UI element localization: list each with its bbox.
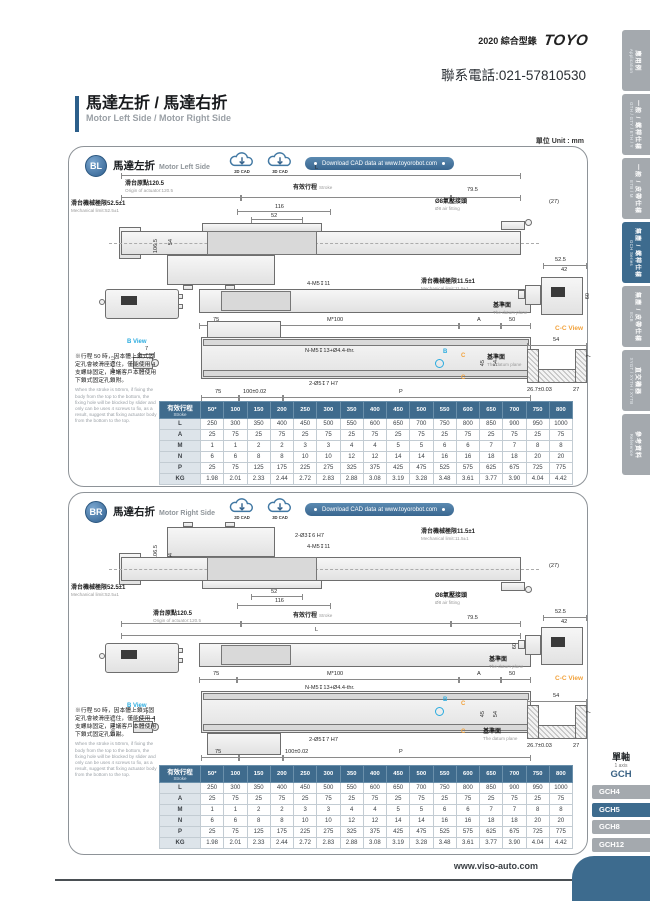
spec-header-row: 有效行程Stroke50*100150200250300350400450500… [160, 402, 573, 419]
spec-cell: 4 [340, 805, 363, 816]
spec-cell: 12 [340, 452, 363, 463]
spec-cell: 950 [526, 783, 549, 794]
dim-line [121, 635, 521, 636]
dim-label-en: Mechanical limit:52.5±1 [71, 592, 125, 598]
spec-cell: 10 [317, 816, 340, 827]
spec-cell: 5 [410, 805, 433, 816]
spec-cell: 3.28 [410, 474, 433, 485]
spec-cell: 600 [363, 783, 386, 794]
spec-cell: 8 [247, 816, 270, 827]
dim-label: 42 [561, 267, 567, 273]
dim-line [121, 623, 241, 624]
stroke-value-cell: 100 [224, 766, 247, 783]
slider-plate-shape [202, 580, 322, 589]
spec-cell: 1 [224, 805, 247, 816]
stroke-value-cell: 800 [549, 766, 572, 783]
dim-label-en: Mechanical limit:52.5±1 [71, 208, 125, 214]
bl-badge: BL [85, 155, 107, 177]
tab-label-zh: 應用例 [634, 48, 643, 72]
spec-cell: 8 [270, 452, 293, 463]
spec-cell: 8 [270, 816, 293, 827]
stroke-value-cell: 700 [503, 766, 526, 783]
download-cad-link[interactable]: Download CAD data at www.toyorobot.com [305, 157, 454, 170]
spec-cell: 4.42 [549, 838, 572, 849]
stroke-value-cell: 450 [387, 402, 410, 419]
row-label-cell: N [160, 816, 201, 827]
motor-sticker [121, 650, 137, 659]
spec-cell: 2 [247, 441, 270, 452]
sidebar-tab-xy-robots[interactable]: 直交機器XYGT / XYTH / XYTB [622, 350, 650, 411]
spec-cell: 75 [410, 794, 433, 805]
stroke-50-note: ※行程 50 時，因本體上鎖式固定孔會被滑座遮住，僅能使用 4 支螺絲固定，建議… [75, 707, 157, 779]
motor-foot-shape [183, 522, 193, 527]
spec-cell: 6 [433, 441, 456, 452]
plan-view-slider-shape [221, 645, 291, 665]
spec-cell: 8 [526, 441, 549, 452]
spec-cell: 3.28 [410, 838, 433, 849]
dim-label: 116 [275, 598, 284, 604]
spec-cell: 25 [201, 463, 224, 474]
spec-cell: 2.33 [247, 474, 270, 485]
dim-label: N-M5↧13+Ø4.4-thr. [305, 348, 355, 354]
br-spec-table: 有效行程Stroke50*100150200250300350400450500… [159, 765, 573, 849]
dim-label: 52.5 [555, 609, 566, 615]
dim-label: (27) [549, 563, 559, 569]
dim-line [527, 701, 587, 702]
cad-3d-button[interactable]: 3D CAD [263, 151, 297, 174]
spec-cell: 2.01 [224, 474, 247, 485]
dim-label: M*100 [327, 317, 343, 323]
cad-2d-button[interactable]: 2D CAD [225, 151, 259, 174]
motor-sticker [121, 296, 137, 305]
spec-cell: 10 [294, 452, 317, 463]
series-item-gch4[interactable]: GCH4 [592, 785, 650, 799]
stroke-value-cell: 600 [456, 766, 479, 783]
stroke-value-cell: 650 [480, 402, 503, 419]
stroke-label: 有效行程Stroke [293, 185, 332, 192]
spec-row: L250300350400450500550600650700750800850… [160, 419, 573, 430]
dim-label: M*100 [327, 671, 343, 677]
spec-cell: 750 [433, 419, 456, 430]
spec-row: A25752575257525752575257525752575 [160, 794, 573, 805]
spec-cell: 25 [480, 430, 503, 441]
spec-cell: 75 [456, 430, 479, 441]
br-badge: BR [85, 501, 107, 523]
dim-label-en: Stroke [319, 613, 332, 619]
stroke-50-note: ※行程 50 時，因本體上鎖式固定孔會被滑座遮住，僅能使用 4 支螺絲固定，建議… [75, 353, 157, 425]
dim-label-zh: 有效行程 [293, 185, 317, 192]
spec-cell: 650 [387, 419, 410, 430]
spec-cell: 6 [224, 452, 247, 463]
spec-cell: 2 [270, 805, 293, 816]
dim-label-en: The datum plane [487, 362, 521, 368]
spec-cell: 850 [480, 783, 503, 794]
stroke-value-cell: 450 [387, 766, 410, 783]
br-panel: BR 馬達右折 Motor Right Side 2D CAD 3D CAD D… [68, 492, 588, 855]
spec-cell: 75 [549, 794, 572, 805]
spec-cell: 14 [387, 816, 410, 827]
cloud-download-icon [265, 497, 295, 515]
spec-cell: 575 [456, 827, 479, 838]
stroke-value-cell: 400 [363, 766, 386, 783]
dim-label-zh: 基準面 [493, 303, 527, 310]
dim-label-zh: 基準面 [483, 729, 517, 736]
row-label-cell: A [160, 430, 201, 441]
row-label-cell: L [160, 419, 201, 430]
tab-label-zh: 無塵 / 皮帶仕樣 [634, 291, 643, 341]
spec-cell: 2.72 [294, 838, 317, 849]
spec-cell: 16 [433, 452, 456, 463]
bottom-view-rail-strip [203, 724, 529, 731]
stroke-value-cell: 50* [201, 402, 224, 419]
spec-cell: 725 [526, 827, 549, 838]
row-label-cell: M [160, 441, 201, 452]
spec-cell: 700 [410, 783, 433, 794]
spec-row: P257512517522527532537542547552557562567… [160, 827, 573, 838]
stroke-value-cell: 350 [340, 402, 363, 419]
stroke-value-cell: 500 [410, 766, 433, 783]
spec-cell: 300 [224, 419, 247, 430]
stroke-value-cell: 650 [480, 766, 503, 783]
bl-title-zh: 馬達左折 [113, 158, 155, 173]
spec-cell: 6 [224, 816, 247, 827]
spec-cell: 14 [387, 452, 410, 463]
sidebar-tab-gch-series[interactable]: 無塵 / 螺桿仕樣GCH Series [622, 222, 650, 283]
spec-cell: 25 [247, 794, 270, 805]
spec-cell: 25 [294, 430, 317, 441]
b-detail-marker [435, 359, 444, 368]
spec-cell: 350 [247, 419, 270, 430]
connector-shape [178, 658, 183, 663]
bl-spec-table: 有效行程Stroke50*100150200250300350400450500… [159, 401, 573, 485]
spec-cell: 275 [317, 827, 340, 838]
series-item-gch12[interactable]: GCH12 [592, 838, 650, 852]
motor-end-view-shape [105, 643, 179, 673]
corner-decoration [572, 856, 650, 901]
spec-cell: 6 [201, 816, 224, 827]
air-fitting-shape [525, 219, 532, 226]
spec-cell: 14 [410, 816, 433, 827]
series-axis-label: 單軸 [592, 750, 650, 763]
dim-label-vertical: 54 [493, 711, 499, 717]
spec-cell: 675 [503, 827, 526, 838]
dim-line [251, 596, 303, 597]
sidebar-tab-etb-m[interactable]: 一般 / 皮帶仕樣ETB / M [622, 158, 650, 219]
page-title-block: 馬達左折 / 馬達右折 Motor Left Side / Motor Righ… [75, 94, 231, 134]
spec-cell: 325 [340, 463, 363, 474]
spec-cell: 5 [387, 441, 410, 452]
spec-cell: 25 [526, 794, 549, 805]
spec-cell: 400 [270, 783, 293, 794]
air-fitting-label: Ø8氣壓接頭Ø8 air fitting [435, 593, 467, 606]
origin-label: 滑台原點120.5Origin of actuator:120.5 [153, 611, 201, 624]
stroke-value-cell: 150 [247, 766, 270, 783]
spec-cell: 75 [270, 794, 293, 805]
spec-cell: 25 [340, 794, 363, 805]
cc-view-label: C-C View [555, 675, 583, 682]
tab-label-zh: 一般 / 皮帶仕樣 [634, 163, 643, 213]
spec-cell: 75 [363, 794, 386, 805]
spec-cell: 2.33 [247, 838, 270, 849]
sidebar-tab-gth-gty-eth-y[interactable]: 一般 / 螺桿仕樣GTH / GTY / ETH / Y [622, 94, 650, 155]
dim-line [501, 325, 531, 326]
spec-cell: 75 [317, 430, 340, 441]
bl-panel: BL 馬達左折 Motor Left Side 2D CAD 3D CAD Do… [68, 146, 588, 487]
dim-line [237, 211, 331, 212]
b-view-label: B View [127, 339, 147, 345]
motor-sticker [551, 287, 565, 297]
spec-cell: 75 [503, 430, 526, 441]
spec-cell: 750 [433, 783, 456, 794]
dim-line [237, 605, 331, 606]
datum-plane-label: 基準面The datum plane [487, 355, 521, 368]
spec-cell: 3.90 [503, 838, 526, 849]
cc-view-knob-shape [518, 640, 525, 649]
spec-cell: 525 [433, 827, 456, 838]
spec-cell: 775 [549, 827, 572, 838]
dim-label: 2-Ø5↧7 H7 [309, 737, 338, 743]
spec-cell: 3 [294, 805, 317, 816]
stroke-header-cell: 有效行程Stroke [160, 766, 201, 783]
row-label-cell: L [160, 783, 201, 794]
cc-section-web-shape [538, 369, 576, 383]
tab-label-en: Reference [629, 430, 634, 458]
spec-cell: 8 [247, 452, 270, 463]
motor-sticker [551, 637, 565, 647]
toyo-logo: TOYO [543, 32, 590, 49]
dim-label-en: Ø8 air fitting [435, 600, 467, 606]
dim-label: 75 [215, 389, 221, 395]
download-cad-label: Download CAD data at www.toyorobot.com [322, 161, 437, 167]
dim-line [121, 175, 521, 176]
dim-line [283, 397, 531, 398]
dim-label-zh: Ø8氣壓接頭 [435, 199, 467, 206]
download-cad-link[interactable]: Download CAD data at www.toyorobot.com [305, 503, 454, 516]
stroke-value-cell: 750 [526, 402, 549, 419]
cad-2d-label: 2D CAD [225, 515, 259, 520]
dim-label: 26.7±0.03 [527, 743, 552, 749]
tab-label-zh: 參考資料 [634, 430, 643, 458]
page-title: 馬達左折 / 馬達右折 [86, 94, 231, 113]
spec-row: M1122334455667788 [160, 441, 573, 452]
cad-3d-label: 3D CAD [263, 169, 297, 174]
c-marker-label: C [461, 353, 465, 359]
stroke-value-cell: 350 [340, 766, 363, 783]
spec-cell: 725 [526, 463, 549, 474]
spec-cell: 850 [480, 419, 503, 430]
cad-3d-label: 3D CAD [263, 515, 297, 520]
sidebar-tab-ecb[interactable]: 無塵 / 皮帶仕樣ECB [622, 286, 650, 347]
spec-cell: 450 [294, 783, 317, 794]
centerline [109, 569, 539, 570]
spec-cell: 775 [549, 463, 572, 474]
spec-cell: 8 [526, 805, 549, 816]
dim-label: 4-M5↧11 [307, 281, 330, 287]
slider-body-shape [207, 231, 317, 255]
dim-label-zh: 滑台原點120.5 [153, 611, 201, 618]
spec-cell: 3.61 [456, 838, 479, 849]
dim-line [239, 757, 283, 758]
catalog-edition: 2020 綜合型錄 TOYO [478, 32, 588, 49]
spec-cell: 525 [433, 463, 456, 474]
spec-cell: 3 [317, 441, 340, 452]
spec-cell: 1 [224, 441, 247, 452]
spec-cell: 425 [387, 463, 410, 474]
dim-label: 27 [573, 387, 579, 393]
dim-label: A [477, 671, 481, 677]
spec-cell: 1000 [549, 783, 572, 794]
note-en: When the stroke is 50mm, if fixing the b… [75, 387, 157, 424]
spec-cell: 3.77 [480, 838, 503, 849]
cad-2d-button[interactable]: 2D CAD [225, 497, 259, 520]
spec-cell: 2.72 [294, 474, 317, 485]
spec-cell: 175 [270, 827, 293, 838]
air-fitting-shape [525, 586, 532, 593]
mech-limit-11-label: 滑台機械極限11.5±1Mechanical limit:11.5±1 [421, 529, 475, 542]
cad-3d-button[interactable]: 3D CAD [263, 497, 297, 520]
spec-cell: 175 [270, 463, 293, 474]
spec-cell: 18 [480, 452, 503, 463]
motor-shape [167, 255, 275, 285]
mech-limit-52-label: 滑台機械極限52.5±1Mechanical limit:52.5±1 [71, 585, 125, 598]
spec-cell: 650 [387, 783, 410, 794]
dim-line [239, 397, 283, 398]
c-marker-label: C [461, 701, 465, 707]
stroke-value-cell: 200 [270, 766, 293, 783]
dim-label: 2-Ø3↧6 H7 [295, 533, 324, 539]
sidebar-tab-reference[interactable]: 參考資料Reference [622, 414, 650, 475]
dim-label-vertical: 60 [585, 293, 591, 299]
spec-cell: 25 [433, 430, 456, 441]
dim-line [201, 757, 239, 758]
dim-label: 42 [561, 619, 567, 625]
motor-end-view-shape [105, 289, 179, 319]
dim-label: A [477, 317, 481, 323]
spec-cell: 375 [363, 827, 386, 838]
cc-view-label: C-C View [555, 325, 583, 332]
spec-row: A25752575257525752575257525752575 [160, 430, 573, 441]
bl-section-header: 馬達左折 Motor Left Side [113, 158, 210, 173]
spec-row: KG1.982.012.332.442.722.832.883.083.193.… [160, 838, 573, 849]
c-marker-label: C [461, 729, 465, 735]
spec-cell: 3.48 [433, 838, 456, 849]
dim-label: 2-Ø5↧7 H7 [309, 381, 338, 387]
bottom-view-rail-strip [203, 370, 529, 377]
tab-label-zh: 直交機器 [634, 357, 643, 404]
cc-view-flange-shape [525, 635, 541, 655]
motor-shape [167, 527, 275, 557]
spec-cell: 1 [201, 805, 224, 816]
spec-cell: 3.19 [387, 838, 410, 849]
tab-label-en: XYGT / XYTH / XYTB [629, 357, 634, 404]
spec-row: N6688101012121414161618182020 [160, 816, 573, 827]
spec-cell: 25 [201, 430, 224, 441]
dim-label: 4-M5↧11 [307, 544, 330, 550]
website-link[interactable]: www.viso-auto.com [454, 861, 538, 871]
c-marker-label: C [461, 375, 465, 381]
spec-cell: 25 [480, 794, 503, 805]
spec-cell: 1000 [549, 419, 572, 430]
dim-label-vertical: 54 [168, 239, 174, 245]
dim-label: 27 [573, 743, 579, 749]
motor-foot-shape [183, 285, 193, 290]
spec-cell: 25 [433, 794, 456, 805]
stroke-value-cell: 150 [247, 402, 270, 419]
spec-cell: 12 [363, 816, 386, 827]
spec-cell: 10 [317, 452, 340, 463]
dim-line [241, 197, 451, 198]
unit-label-bl: 單位 Unit : mm [536, 136, 584, 146]
tab-label-en: Application [629, 48, 634, 72]
connector-shape [178, 294, 183, 299]
spec-cell: 800 [456, 783, 479, 794]
contact-phone: 聯系電話:021-57810530 [441, 64, 586, 84]
dim-label-zh: 滑台機械極限52.5±1 [71, 585, 125, 592]
dim-label-zh: 滑台機械極限11.5±1 [421, 279, 475, 286]
spec-cell: 400 [270, 419, 293, 430]
spec-cell: 75 [224, 794, 247, 805]
b-detail-marker [435, 707, 444, 716]
dim-label: 75 [215, 749, 221, 755]
cloud-download-icon [265, 151, 295, 169]
dim-label-en: Mechanical limit:11.5±1 [421, 536, 475, 542]
spec-cell: 300 [224, 783, 247, 794]
dim-label-en: Ø8 air fitting [435, 206, 467, 212]
dim-label-en: The datum plane [489, 664, 523, 670]
spec-cell: 125 [247, 827, 270, 838]
spec-cell: 3.61 [456, 474, 479, 485]
dim-label: 50 [509, 671, 515, 677]
spec-cell: 75 [270, 430, 293, 441]
spec-cell: 12 [340, 816, 363, 827]
spec-cell: 16 [433, 816, 456, 827]
dim-label-en: The datum plane [483, 736, 517, 742]
spec-cell: 475 [410, 827, 433, 838]
bottom-view-rail-strip [203, 693, 529, 700]
dim-label-vertical: 7 [586, 711, 592, 714]
spec-cell: 8 [549, 805, 572, 816]
stroke-label: 有效行程Stroke [293, 613, 332, 620]
series-item-gch5[interactable]: GCH5 [592, 803, 650, 817]
dim-line [199, 679, 237, 680]
spec-cell: 125 [247, 463, 270, 474]
dim-label-vertical: 60 [512, 643, 518, 649]
sidebar-tab-application[interactable]: 應用例Application [622, 30, 650, 91]
spec-cell: 6 [433, 805, 456, 816]
spec-cell: 5 [410, 441, 433, 452]
stroke-header-cell: 有效行程Stroke [160, 402, 201, 419]
stroke-value-cell: 550 [433, 402, 456, 419]
spec-cell: 475 [410, 463, 433, 474]
spec-cell: 900 [503, 419, 526, 430]
download-cad-label: Download CAD data at www.toyorobot.com [322, 507, 437, 513]
title-accent-bar [75, 96, 79, 132]
series-item-gch8[interactable]: GCH8 [592, 820, 650, 834]
dim-line [543, 617, 587, 618]
spec-cell: 325 [340, 827, 363, 838]
dim-label-zh: 滑台機械極限11.5±1 [421, 529, 475, 536]
spec-cell: 675 [503, 463, 526, 474]
spec-cell: 2.44 [270, 474, 293, 485]
spec-cell: 2.88 [340, 474, 363, 485]
spec-cell: 2.01 [224, 838, 247, 849]
spec-cell: 25 [526, 430, 549, 441]
row-label-cell: KG [160, 838, 201, 849]
row-label-cell: KG [160, 474, 201, 485]
spec-cell: 500 [317, 419, 340, 430]
stroke-value-cell: 800 [549, 402, 572, 419]
stroke-value-cell: 100 [224, 402, 247, 419]
